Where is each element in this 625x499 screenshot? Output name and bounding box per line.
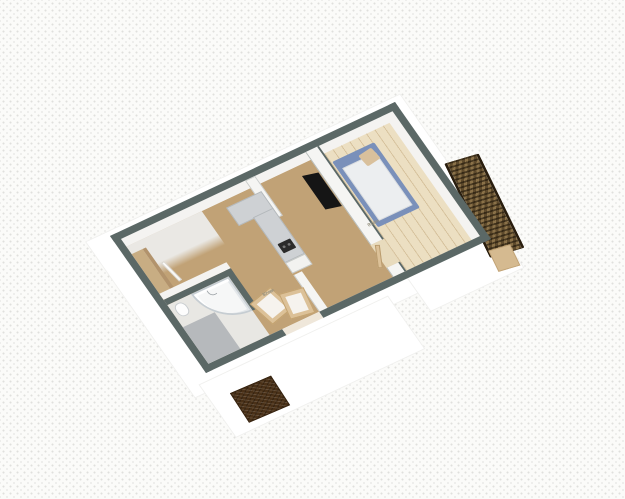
door-panel <box>285 293 309 315</box>
floorplan-3d-model: Room 9 m² Room 17 m² <box>110 102 491 373</box>
floorplan-viewport[interactable]: Room 9 m² Room 17 m² <box>0 0 625 499</box>
